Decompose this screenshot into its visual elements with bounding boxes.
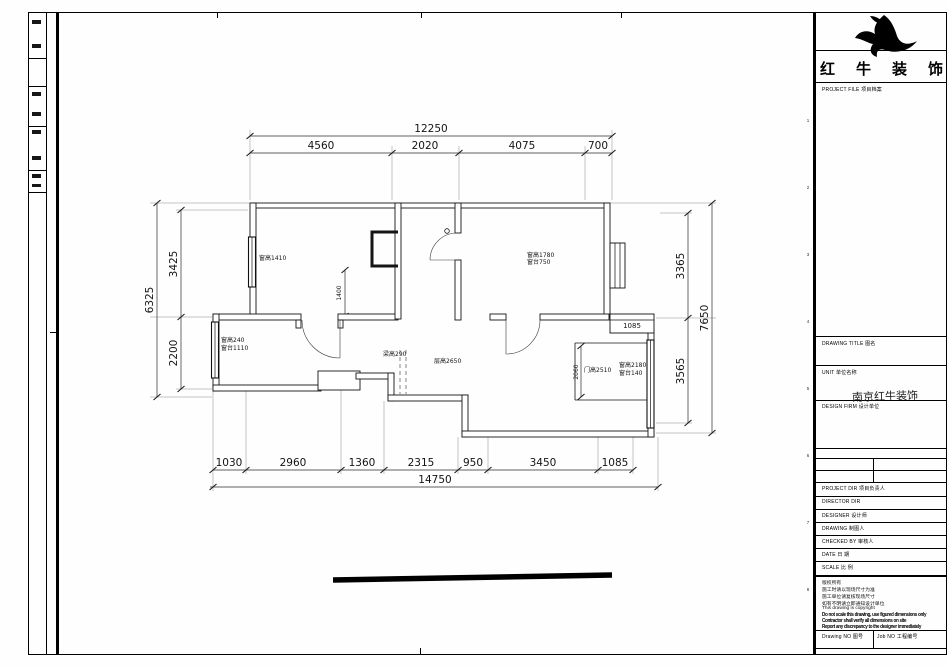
walls [213,203,654,437]
drawing-no-label: Drawing NO 图号 [822,633,863,640]
dim-top-seg: 4560 [308,140,335,152]
ruler-mark: 1 [804,118,812,123]
tb-line [816,522,947,523]
drawing-title-label: DRAWING TITLE 图名 [822,340,875,347]
ruler-mark: 2 [804,185,812,190]
dim-bottom-seg: 1030 [216,457,243,469]
tb-line [816,630,947,631]
binding-strip-inner [46,12,47,655]
section-bar [333,575,612,580]
dim-left-seg: 2200 [168,340,180,367]
annotation-window: 窗台140 [619,369,643,377]
frame-tick [621,12,622,18]
frame-left-thick [56,12,59,655]
project-file-label: PROJECT FILE 项目档案 [822,86,882,93]
tb-line [816,448,947,449]
door-swings [302,233,540,358]
annotation-beam: 梁高290 [383,350,407,358]
dimension-lines [157,136,712,487]
strip-divider [28,170,46,171]
ruler-mark: 8 [804,587,812,592]
tb-line [816,561,947,562]
date-label: DATE 日 期 [822,551,849,558]
dim-interior: 2060 [573,364,580,379]
binding-strip-outer [28,12,29,655]
scale-label: SCALE 比 例 [822,564,853,571]
frame-right [946,12,947,655]
tb-line [816,509,947,510]
frame-tick [421,12,422,18]
dim-left-seg: 3425 [168,251,180,278]
strip-mark [32,130,41,134]
company-stamp: 南京红牛装饰 [826,386,944,406]
dim-bottom-overall: 14750 [418,474,451,486]
floor-plan: 12250 4560 2020 4075 700 6325 3425 2200 … [0,0,949,668]
director-label: DIRECTOR DIR [822,499,860,505]
tb-divider [873,630,874,648]
dim-right-seg: 3565 [675,358,687,385]
dim-bottom-seg: 1085 [602,457,629,469]
ruler-mark: 6 [804,453,812,458]
entry-bay [610,314,654,333]
annotation-window: 窗台1110 [221,344,248,352]
frame-tick [420,648,421,654]
bay-window [610,243,625,288]
strip-mark [32,174,41,178]
checked-by-label: CHECKED BY 审核人 [822,538,874,545]
frame-tick [50,332,57,333]
annotation-window: 窗高2180 [619,361,646,369]
tb-line [816,458,947,459]
annotation-ceiling-height: 层高2650 [434,357,461,365]
strip-divider [28,192,46,193]
annotation-door-height: 门高2510 [584,366,611,374]
annotation-window: 窗台750 [527,258,551,266]
verify-note: 施工单位请复核现场尺寸 [822,593,875,600]
strip-mark [32,184,41,187]
fixture-circle [445,229,450,234]
drawing-sheet: 1 2 3 4 5 6 7 8 红牛装饰 PROJECT FILE 项目档案 D… [0,0,949,668]
frame-bottom [28,654,947,655]
tb-line [816,496,947,497]
frame-top [28,12,947,13]
company-name: 红牛装饰 [816,58,949,79]
designer-label: DESIGNER 设计师 [822,512,867,519]
disclaimer-note: Do not scale this drawing, use figured d… [822,612,926,618]
unit-label: UNIT 单位名称 [822,369,857,376]
dim-interior: 1400 [336,285,343,300]
strip-mark [32,112,41,116]
dim-top-seg: 2020 [412,140,439,152]
tb-line [816,336,947,337]
drawing-by-label: DRAWING 制图人 [822,525,865,532]
tb-line [816,548,947,549]
dim-bottom-seg: 1360 [349,457,376,469]
tb-line [816,648,947,649]
strip-mark [32,92,41,96]
dim-top-seg: 4075 [509,140,536,152]
dim-left-overall: 6325 [144,287,156,314]
tb-line [816,482,947,483]
dim-top-seg: 700 [588,140,608,152]
redbull-logo-icon [840,13,920,57]
annotation-window: 窗高240 [221,336,245,344]
tb-line [816,470,947,471]
tb-divider [873,458,874,482]
beam-dashed-lines [400,350,406,394]
copyright-en-note: This drawing is copyright [822,606,875,611]
copyright-note: 版权所有 [822,579,841,586]
titleblock-left-thick [813,12,816,655]
tb-line [816,82,947,83]
strip-mark [32,20,41,24]
frame-tick [217,12,218,18]
project-dir-label: PROJECT DIR 项目负责人 [822,485,885,492]
strip-mark [32,156,41,160]
job-no-label: Job NO 工程编号 [877,633,918,640]
strip-divider [28,86,46,87]
ruler-mark: 5 [804,386,812,391]
interior-partitions [372,229,648,400]
ruler-mark: 3 [804,252,812,257]
strip-divider [28,58,46,59]
annotation-window: 窗高1780 [527,251,554,259]
dim-right-seg: 3365 [675,253,687,280]
disclaimer-note: Contractor shall verify all dimensions o… [822,618,906,624]
dim-entry-bay: 1085 [623,322,641,330]
tb-line [816,365,947,366]
dim-bottom-seg: 2315 [408,457,435,469]
strip-mark [32,44,41,48]
tb-line [816,535,947,536]
tb-line [816,575,947,577]
dim-bottom-seg: 3450 [530,457,557,469]
ruler-mark: 7 [804,520,812,525]
strip-divider [28,126,46,127]
windows [212,237,655,428]
dim-top-overall: 12250 [414,123,447,135]
dim-right-overall: 7650 [699,305,711,332]
dim-bottom-seg: 2960 [280,457,307,469]
extension-lines [150,130,716,491]
site-dims-note: 施工时请以现场尺寸为准 [822,586,875,593]
annotation-window: 窗高1410 [259,254,286,262]
dim-bottom-seg: 950 [463,457,483,469]
dimension-ticks [154,133,716,490]
disclaimer-note: Report any discrepancy to the designer i… [822,624,921,630]
ruler-mark: 4 [804,319,812,324]
